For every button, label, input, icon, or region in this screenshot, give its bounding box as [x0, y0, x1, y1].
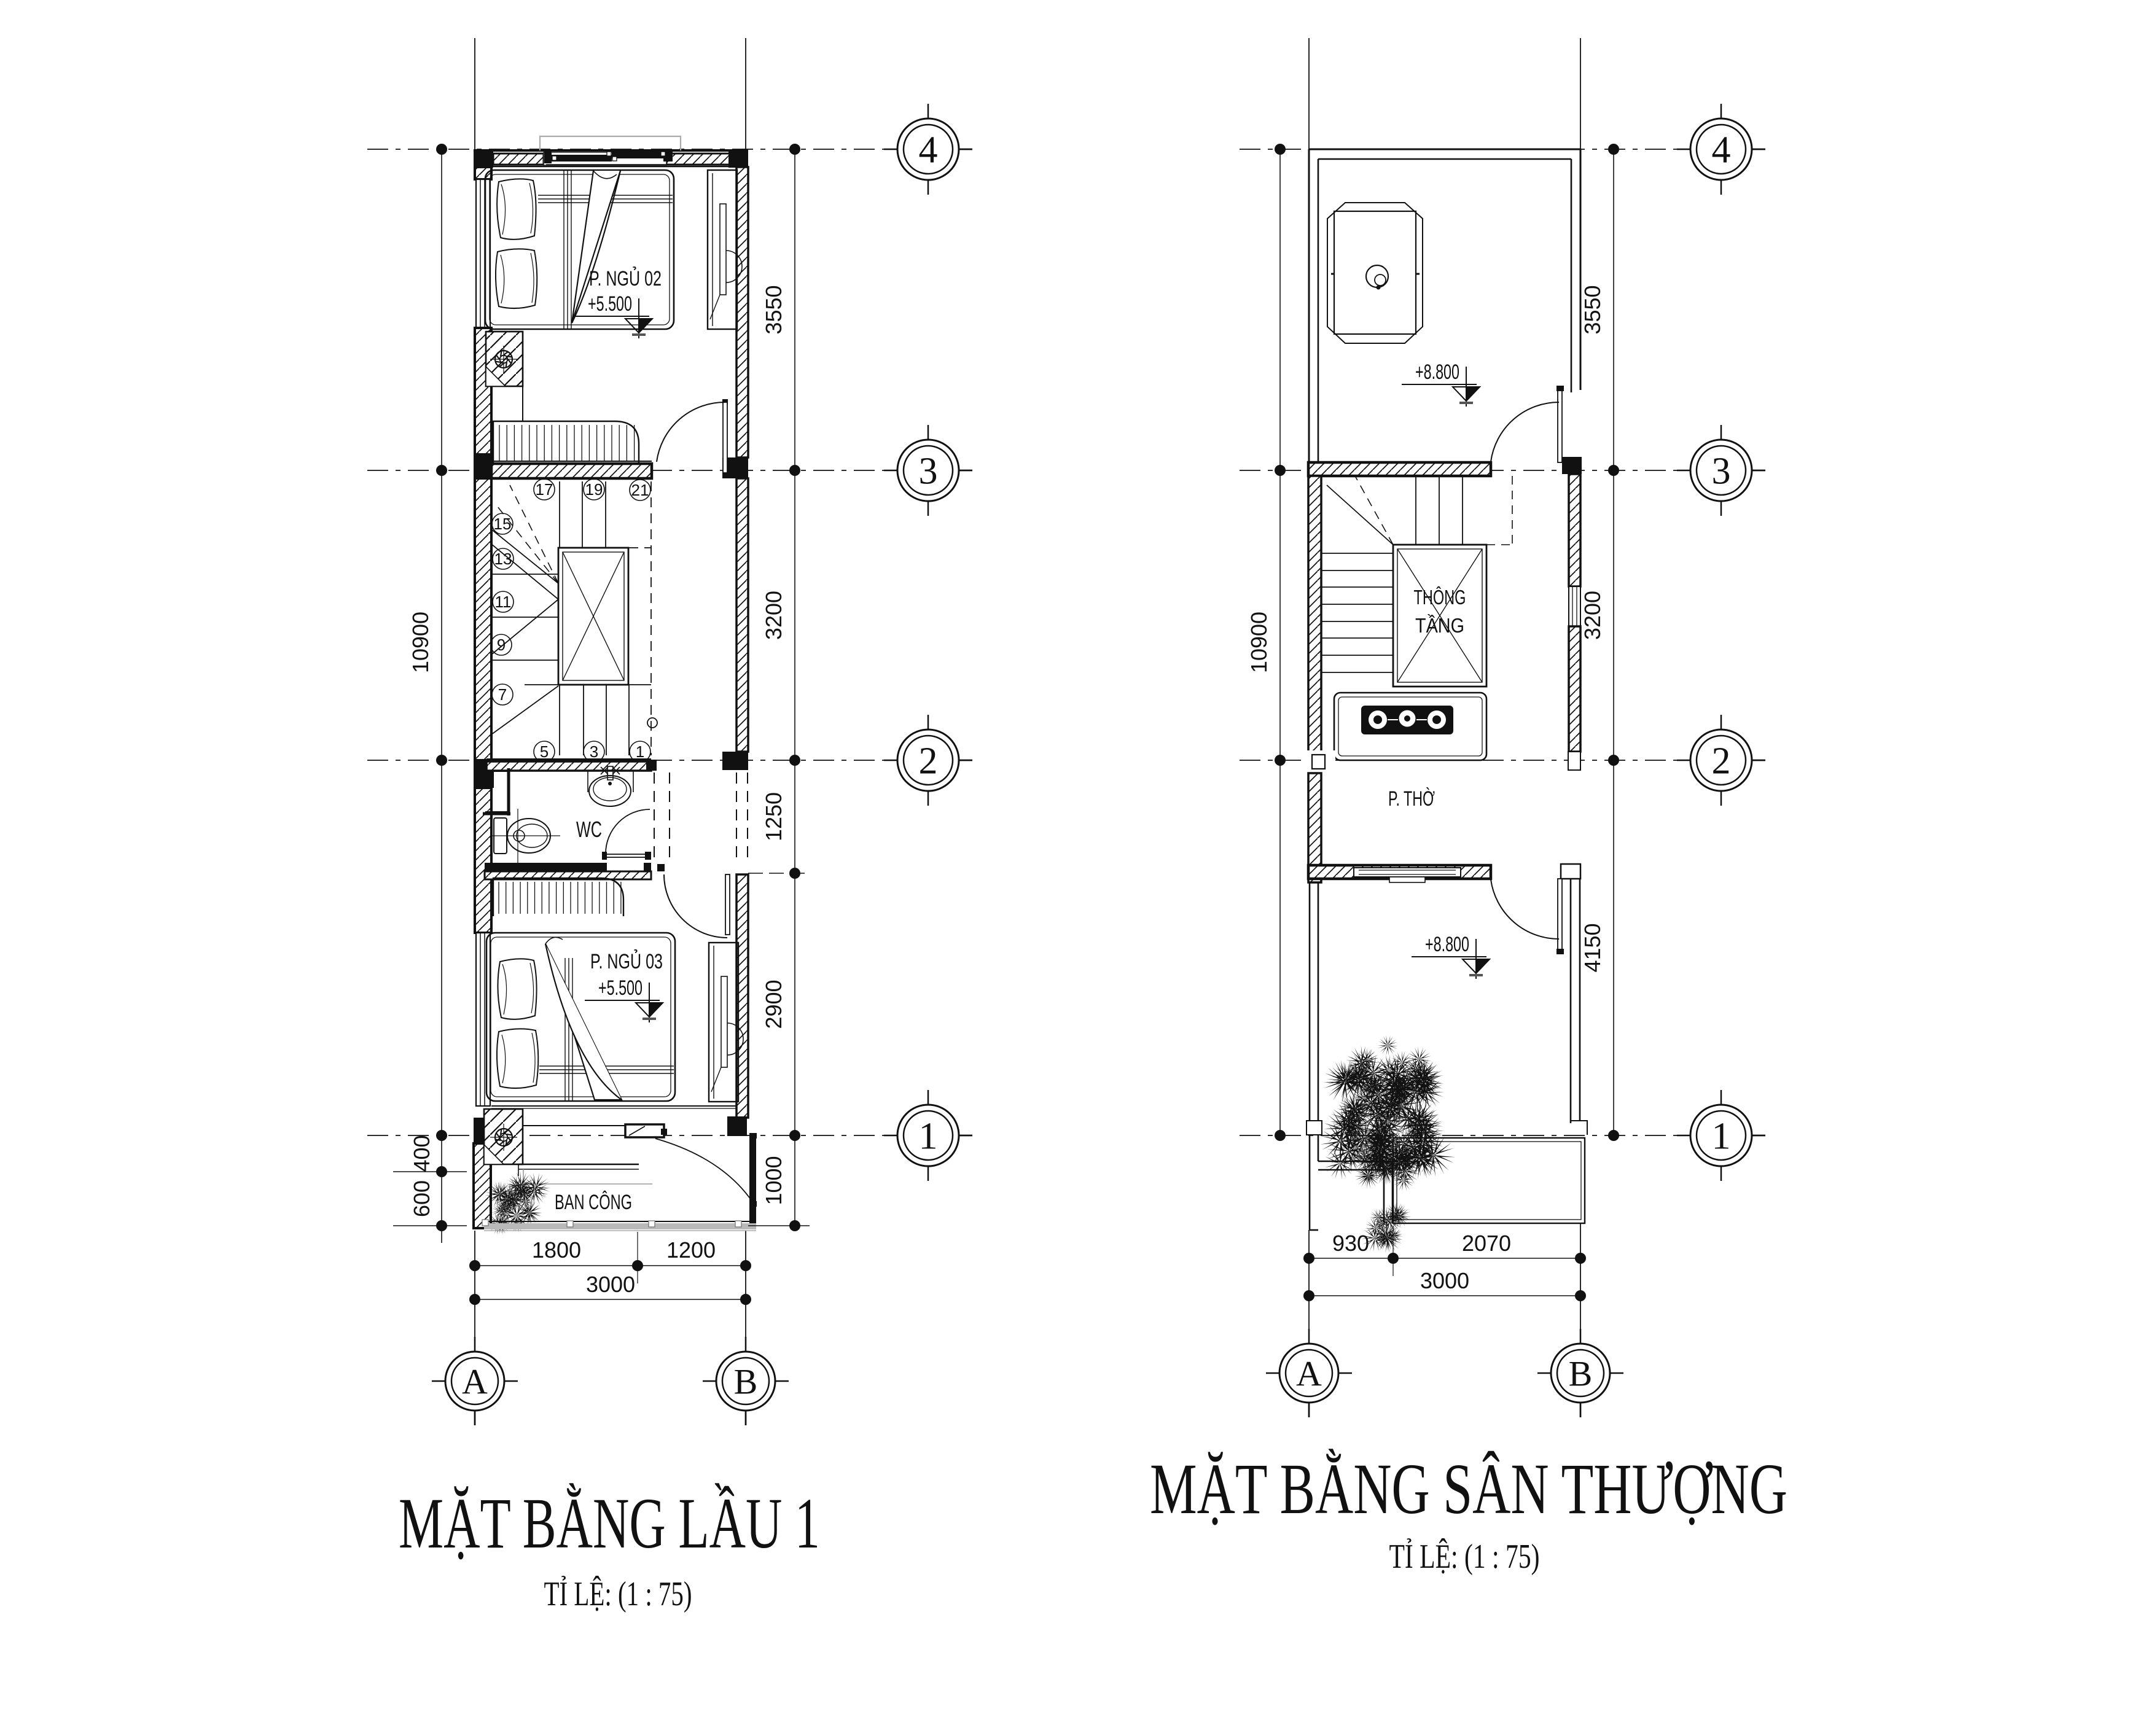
svg-text:1200: 1200	[666, 1237, 716, 1263]
svg-text:3: 3	[590, 742, 598, 761]
svg-text:9: 9	[497, 636, 506, 654]
svg-text:P. THỜ: P. THỜ	[1388, 787, 1435, 811]
svg-text:17: 17	[536, 480, 553, 499]
svg-text:+8.800: +8.800	[1415, 360, 1459, 384]
svg-text:1250: 1250	[761, 792, 786, 841]
svg-text:15: 15	[494, 515, 512, 533]
svg-text:MẶT BẰNG SÂN THƯỢNG: MẶT BẰNG SÂN THƯỢNG	[1150, 1448, 1787, 1529]
svg-text:930: 930	[1332, 1231, 1369, 1256]
svg-text:+5.500: +5.500	[588, 292, 632, 316]
svg-text:13: 13	[494, 550, 512, 568]
svg-text:19: 19	[585, 480, 603, 499]
svg-text:3550: 3550	[761, 285, 786, 334]
svg-text:4150: 4150	[1580, 923, 1605, 972]
svg-text:400: 400	[409, 1135, 434, 1172]
svg-text:3: 3	[1712, 451, 1731, 492]
svg-text:3550: 3550	[1580, 285, 1605, 334]
svg-text:1800: 1800	[532, 1237, 581, 1263]
svg-text:TẦNG: TẦNG	[1415, 614, 1464, 637]
svg-text:3200: 3200	[1580, 591, 1605, 640]
svg-text:BAN CÔNG: BAN CÔNG	[555, 1191, 632, 1214]
svg-text:1000: 1000	[761, 1156, 786, 1205]
svg-text:10900: 10900	[1246, 612, 1271, 673]
svg-text:3000: 3000	[586, 1272, 635, 1297]
svg-text:11: 11	[495, 593, 512, 611]
svg-text:2: 2	[919, 741, 938, 782]
svg-text:21: 21	[631, 481, 649, 499]
svg-text:600: 600	[409, 1180, 434, 1217]
svg-text:TỈ LỆ: (1 : 75): TỈ LỆ: (1 : 75)	[544, 1575, 692, 1613]
svg-text:B: B	[1569, 1353, 1593, 1393]
svg-text:P. NGỦ 03: P. NGỦ 03	[590, 950, 663, 973]
svg-text:7: 7	[498, 685, 507, 704]
svg-text:TỈ LỆ: (1 : 75): TỈ LỆ: (1 : 75)	[1389, 1538, 1540, 1576]
svg-text:2070: 2070	[1462, 1231, 1511, 1256]
svg-text:B: B	[734, 1361, 758, 1401]
svg-text:4: 4	[919, 130, 938, 171]
svg-text:2: 2	[1712, 741, 1731, 782]
svg-text:A: A	[462, 1361, 488, 1401]
svg-text:+8.800: +8.800	[1425, 933, 1469, 956]
svg-text:A: A	[1296, 1353, 1322, 1393]
svg-text:3000: 3000	[1420, 1268, 1469, 1293]
svg-text:1: 1	[919, 1116, 938, 1158]
svg-text:1: 1	[636, 742, 644, 761]
svg-text:MẶT BẰNG LẦU 1: MẶT BẰNG LẦU 1	[399, 1482, 820, 1563]
svg-text:3: 3	[919, 451, 938, 492]
svg-text:P. NGỦ 02: P. NGỦ 02	[589, 267, 662, 290]
svg-text:4: 4	[1712, 130, 1731, 171]
svg-text:5: 5	[540, 742, 549, 761]
svg-text:WC: WC	[576, 817, 602, 842]
svg-text:2900: 2900	[761, 979, 786, 1029]
svg-text:3200: 3200	[761, 591, 786, 640]
svg-text:THÔNG: THÔNG	[1414, 586, 1466, 609]
svg-text:1: 1	[1712, 1116, 1731, 1158]
svg-text:10900: 10900	[408, 612, 433, 673]
svg-text:+5.500: +5.500	[598, 976, 643, 1000]
